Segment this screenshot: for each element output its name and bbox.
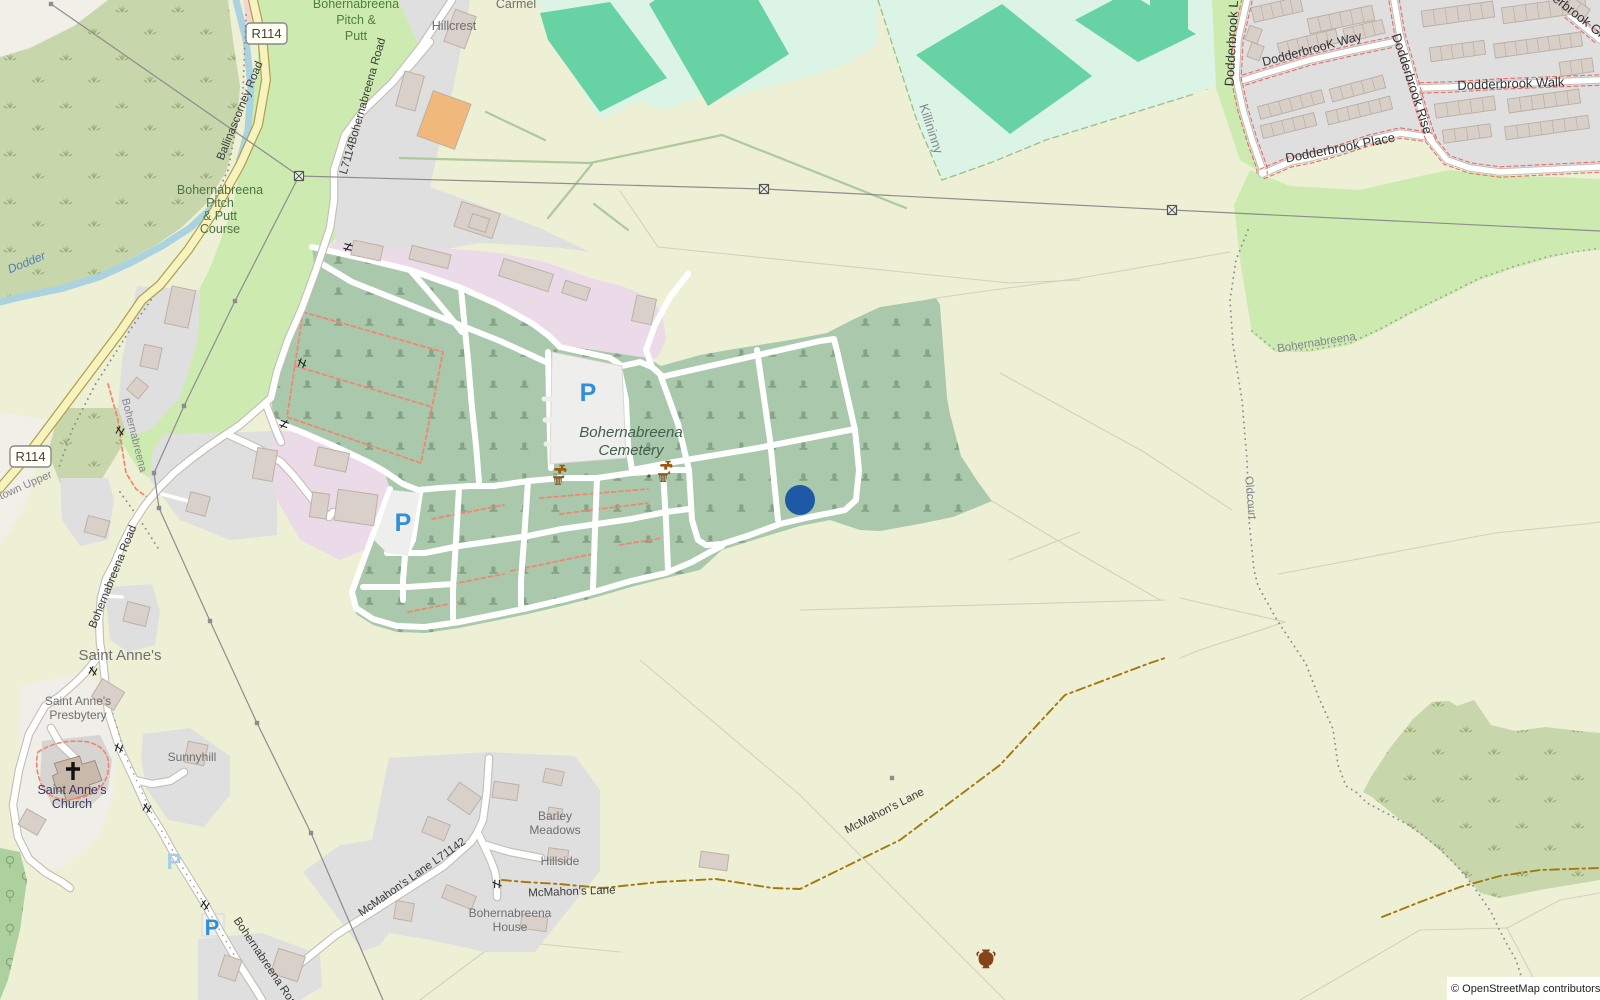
svg-text:Hillcrest: Hillcrest (432, 19, 477, 33)
svg-text:P: P (205, 915, 220, 940)
svg-text:Presbytery: Presbytery (49, 708, 106, 722)
svg-text:Course: Course (200, 222, 240, 236)
svg-text:House: House (493, 920, 528, 934)
svg-text:R114: R114 (251, 26, 281, 41)
svg-text:Saint Anne's: Saint Anne's (37, 783, 106, 797)
svg-text:Church: Church (52, 797, 92, 811)
svg-text:Pitch &: Pitch & (336, 13, 376, 27)
svg-text:© OpenStreetMap contributors: © OpenStreetMap contributors (1451, 983, 1600, 995)
svg-text:Hillside: Hillside (541, 854, 580, 868)
svg-text:Bohernabreena: Bohernabreena (313, 0, 399, 11)
svg-text:P: P (580, 379, 597, 407)
svg-text:& Putt: & Putt (203, 209, 238, 223)
svg-text:Saint Anne's: Saint Anne's (45, 694, 111, 708)
svg-text:Bohernabreena: Bohernabreena (177, 183, 263, 197)
svg-text:Carmel: Carmel (496, 0, 536, 11)
svg-text:Sunnyhill: Sunnyhill (168, 750, 217, 764)
svg-text:Barley: Barley (538, 809, 572, 823)
svg-text:Pitch: Pitch (206, 196, 234, 210)
svg-text:R114: R114 (15, 449, 45, 464)
svg-text:P: P (395, 509, 412, 537)
svg-text:Putt: Putt (345, 29, 368, 43)
svg-text:Bohernabreena: Bohernabreena (579, 424, 682, 441)
svg-text:Saint Anne's: Saint Anne's (79, 647, 162, 664)
svg-text:Meadows: Meadows (529, 823, 580, 837)
svg-text:Cemetery: Cemetery (598, 442, 665, 459)
svg-text:Bohernabreena: Bohernabreena (469, 906, 552, 920)
svg-text:P: P (167, 849, 182, 874)
